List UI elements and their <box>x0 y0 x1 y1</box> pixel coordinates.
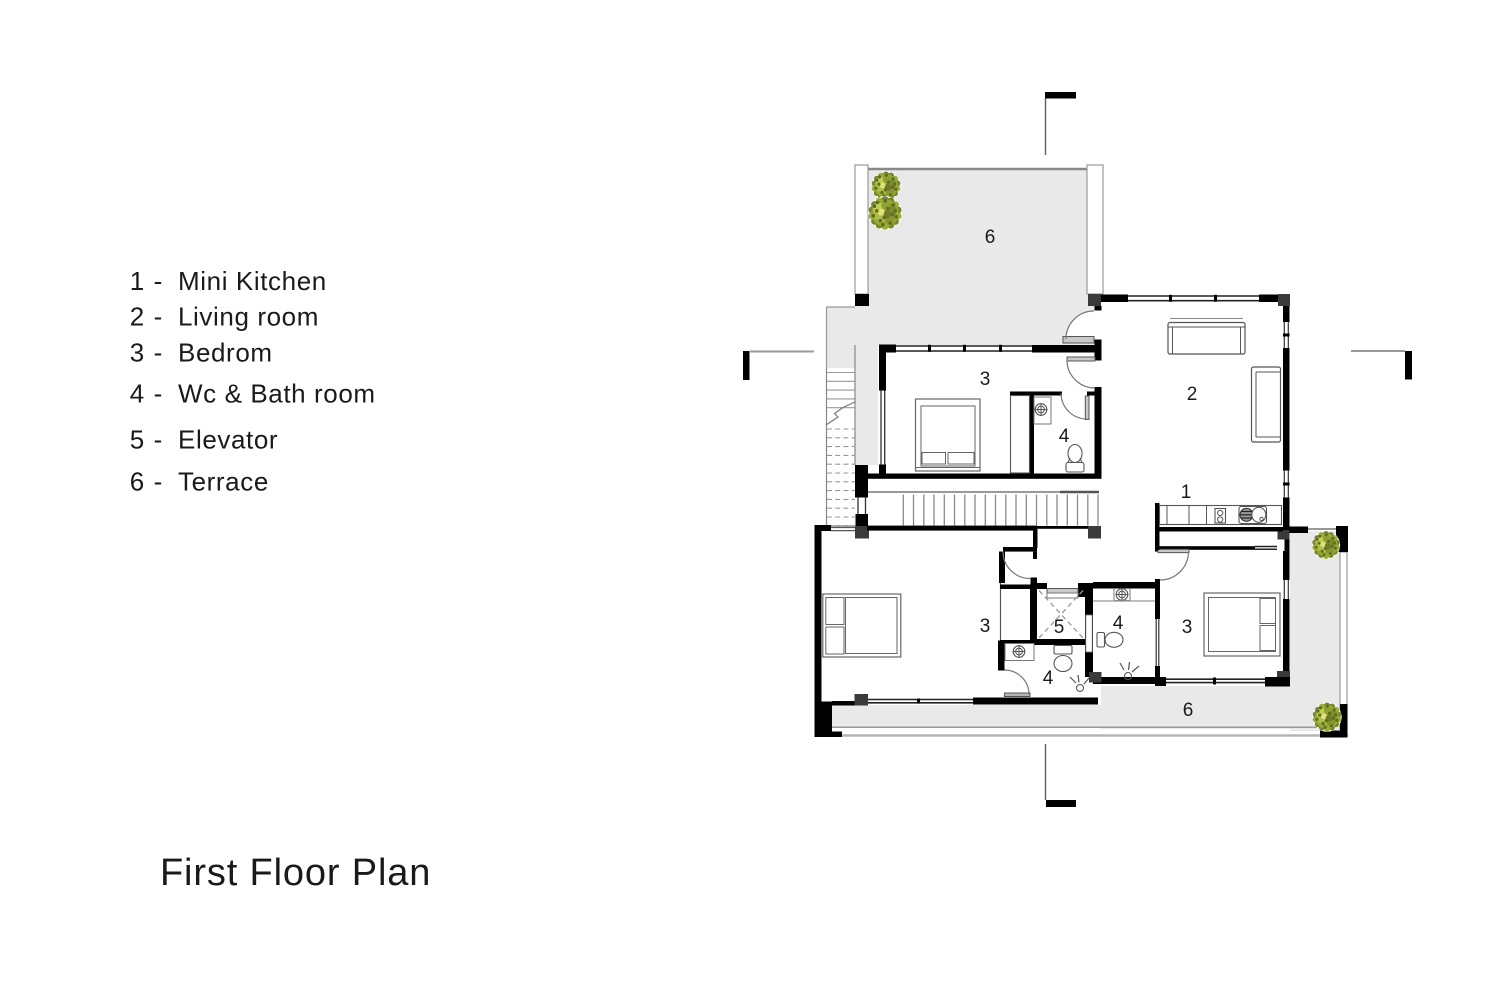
svg-text:-: - <box>154 467 163 497</box>
svg-text:5: 5 <box>1054 617 1065 638</box>
svg-text:Elevator: Elevator <box>178 425 278 455</box>
svg-text:-: - <box>154 266 163 296</box>
svg-text:6: 6 <box>985 227 996 248</box>
svg-text:3: 3 <box>1182 617 1193 638</box>
svg-text:2: 2 <box>1187 384 1198 405</box>
svg-text:-: - <box>154 338 163 368</box>
svg-text:4: 4 <box>1043 668 1054 689</box>
svg-text:-: - <box>154 302 163 332</box>
svg-text:4: 4 <box>1059 426 1070 447</box>
svg-text:1: 1 <box>130 266 144 296</box>
svg-text:4: 4 <box>1113 613 1124 634</box>
svg-text:Living room: Living room <box>178 302 319 332</box>
svg-text:-: - <box>154 425 163 455</box>
svg-text:Mini Kitchen: Mini Kitchen <box>178 266 327 296</box>
svg-text:6: 6 <box>1183 700 1194 721</box>
svg-text:1: 1 <box>1181 482 1192 503</box>
svg-text:6: 6 <box>130 467 144 497</box>
svg-text:3: 3 <box>130 338 144 368</box>
svg-text:4: 4 <box>130 379 144 409</box>
svg-text:Bedrom: Bedrom <box>178 338 273 368</box>
svg-text:2: 2 <box>130 302 144 332</box>
svg-text:5: 5 <box>130 425 144 455</box>
svg-text:Wc & Bath room: Wc & Bath room <box>178 379 376 409</box>
svg-text:Terrace: Terrace <box>178 467 269 497</box>
svg-text:3: 3 <box>980 369 991 390</box>
svg-text:-: - <box>154 379 163 409</box>
svg-text:3: 3 <box>980 616 991 637</box>
svg-text:First Floor Plan: First Floor Plan <box>160 852 431 894</box>
